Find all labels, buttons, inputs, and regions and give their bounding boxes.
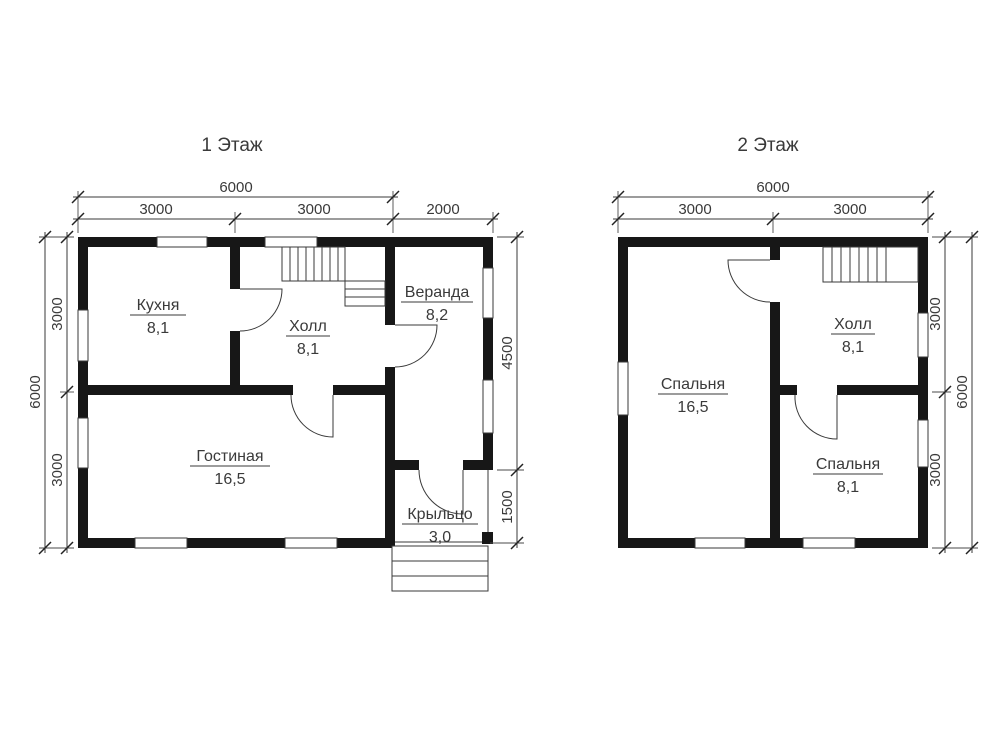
- window: [618, 362, 628, 415]
- room-name-label: Гостиная: [196, 448, 263, 465]
- floor-plan-canvas: 1 Этаж: [0, 0, 1000, 750]
- floor1-plan: 1 Этаж: [27, 135, 524, 591]
- window: [483, 268, 493, 318]
- floor2-title: 2 Этаж: [737, 135, 799, 156]
- dimension-label: 1500: [499, 490, 516, 523]
- dimension-label: 3000: [49, 297, 66, 330]
- dimension-label: 6000: [756, 179, 789, 196]
- window: [157, 237, 207, 247]
- floor2-plan: 2 Этаж: [612, 135, 978, 554]
- floor1-room-kitchen: [88, 247, 230, 385]
- room-name-label: Крыльцо: [407, 506, 472, 523]
- room-area-label: 16,5: [214, 471, 245, 488]
- room-name-label: Спальня: [661, 376, 725, 393]
- dimension-label: 3000: [927, 453, 944, 486]
- room-name-label: Холл: [834, 316, 872, 333]
- floor2-door-opening-bedroom-right: [797, 385, 837, 395]
- dimension-label: 4500: [499, 336, 516, 369]
- room-area-label: 16,5: [677, 399, 708, 416]
- dimension-label: 6000: [27, 375, 44, 408]
- dimension-label: 3000: [297, 201, 330, 218]
- floor1-room-hall: [240, 247, 385, 385]
- dimension-label: 3000: [927, 297, 944, 330]
- room-area-label: 8,1: [837, 479, 859, 496]
- floor1-door-opening-kitchen: [230, 289, 240, 331]
- dimension-label: 2000: [426, 201, 459, 218]
- room-name-label: Веранда: [405, 284, 470, 301]
- room-area-label: 3,0: [429, 529, 451, 546]
- room-area-label: 8,2: [426, 307, 448, 324]
- floor1-door-opening-living: [293, 385, 333, 395]
- dimension-label: 3000: [678, 201, 711, 218]
- floor-plan-page: 1 Этаж: [0, 0, 1000, 750]
- dimension-label: 6000: [219, 179, 252, 196]
- porch-step: [392, 576, 488, 591]
- dimension-label: 6000: [954, 375, 971, 408]
- porch-corner-post: [482, 532, 493, 544]
- window: [78, 310, 88, 361]
- room-area-label: 8,1: [297, 341, 319, 358]
- room-name-label: Кухня: [137, 297, 180, 314]
- porch-step: [392, 546, 488, 561]
- room-area-label: 8,1: [147, 320, 169, 337]
- dimension-label: 3000: [49, 453, 66, 486]
- room-area-label: 8,1: [842, 339, 864, 356]
- window: [78, 418, 88, 468]
- dimension-label: 3000: [833, 201, 866, 218]
- room-name-label: Холл: [289, 318, 327, 335]
- floor1-title: 1 Этаж: [201, 135, 263, 156]
- window: [803, 538, 855, 548]
- floor1-door-opening-porch: [419, 460, 463, 470]
- porch-step: [392, 561, 488, 576]
- window: [135, 538, 187, 548]
- window: [285, 538, 337, 548]
- dimension-label: 3000: [139, 201, 172, 218]
- window: [695, 538, 745, 548]
- window: [483, 380, 493, 433]
- window: [265, 237, 317, 247]
- floor1-room-veranda: [395, 247, 483, 460]
- floor2-door-opening-bedroom-left: [770, 260, 780, 302]
- floor1-door-opening-veranda: [385, 325, 395, 367]
- room-name-label: Спальня: [816, 456, 880, 473]
